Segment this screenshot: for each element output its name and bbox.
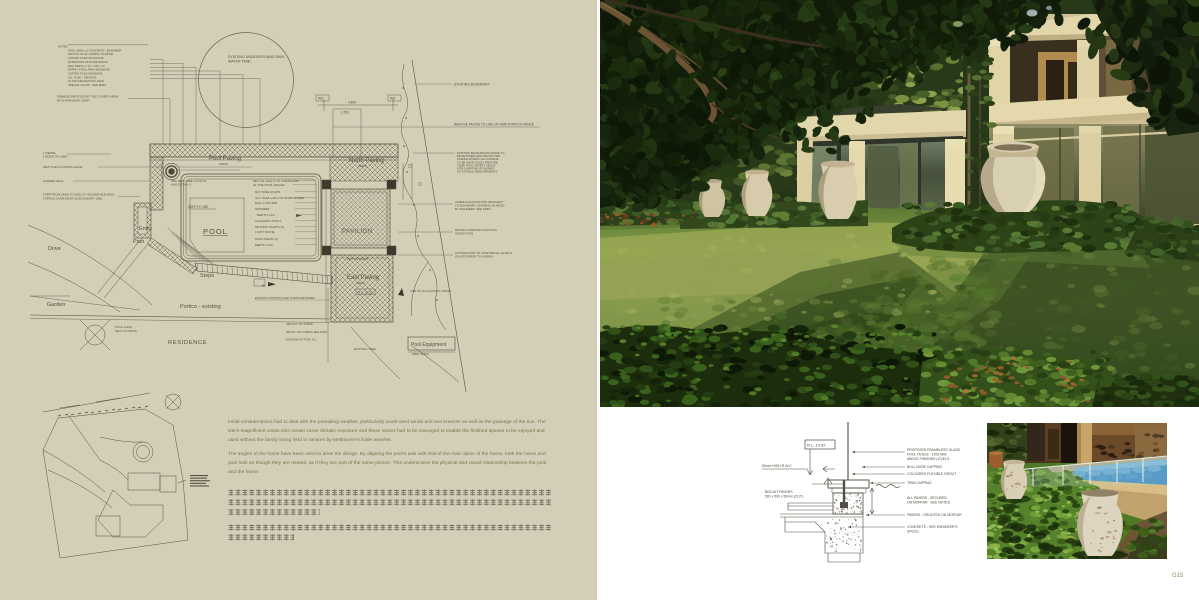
svg-text:(NEW): (NEW) (356, 281, 365, 285)
svg-text:EXISTING AT POR. R.L.: EXISTING AT POR. R.L. (286, 338, 318, 342)
svg-text:1 EDGE OF LAWN: 1 EDGE OF LAWN (43, 155, 67, 159)
svg-text:MAIN DRAIN (2): MAIN DRAIN (2) (255, 237, 278, 241)
svg-text:ON MORTAR - SEE NOTES.: ON MORTAR - SEE NOTES. (907, 500, 951, 504)
svg-text:ALL PAVERS - SECURED: ALL PAVERS - SECURED (907, 496, 947, 500)
svg-text:R.L. 14.52: R.L. 14.52 (358, 290, 373, 294)
svg-text:CONCRETE - SEE ENGINEER’S: CONCRETE - SEE ENGINEER’S (907, 525, 958, 529)
svg-text:SKIMMER: SKIMMER (255, 207, 270, 211)
svg-text:RESIDENCE: RESIDENCE (168, 340, 207, 346)
svg-text:POOL: POOL (203, 227, 228, 236)
svg-text:2.250: 2.250 (341, 111, 349, 115)
svg-text:RETURN INLETS (4): RETURN INLETS (4) (255, 225, 284, 229)
svg-text:B: B (262, 283, 265, 288)
svg-text:TRIM CAPPING: TRIM CAPPING (907, 481, 932, 485)
svg-text:TOPSOIL OVER EDGE AS BOUNDAR: TOPSOIL OVER EDGE AS BOUNDARY LINE (43, 196, 102, 200)
svg-text:ABOVE FINISHED LEVELS: ABOVE FINISHED LEVELS (907, 457, 950, 461)
svg-text:Steps: Steps (200, 273, 214, 279)
svg-text:PROPOSED FRAMELESS GLASS: PROPOSED FRAMELESS GLASS (907, 448, 961, 452)
svg-text:DETAIL OF COPING SEE DWG: DETAIL OF COPING SEE DWG (286, 330, 328, 334)
svg-text:SAFETY LINE: SAFETY LINE (188, 205, 208, 209)
svg-text:DEPTH 1.1m: DEPTH 1.1m (257, 213, 276, 217)
svg-text:CLEANING POINT: CLEANING POINT (255, 219, 281, 223)
svg-text:Drive: Drive (48, 246, 61, 252)
svg-text:REMOVE PALING TO LINE OF NEW: REMOVE PALING TO LINE OF NEW PORTICO FEN… (454, 123, 534, 127)
svg-text:AND DETAIL X: AND DETAIL X (171, 183, 191, 187)
svg-text:Pool Equipment: Pool Equipment (411, 342, 447, 348)
svg-text:EXISTING BOUNDARY: EXISTING BOUNDARY (454, 83, 491, 87)
svg-text:(SEE SPEC): (SEE SPEC) (412, 352, 429, 356)
svg-text:ALL TILES LAID ON MORTAR BED: ALL TILES LAID ON MORTAR BED (255, 196, 305, 200)
svg-text:(NEW): (NEW) (358, 164, 367, 168)
svg-text:SPECS.: SPECS. (907, 529, 919, 533)
svg-text:FALL 1:100 MIN: FALL 1:100 MIN (255, 201, 277, 205)
svg-text:TO COUNCIL REQUIREMENTS: TO COUNCIL REQUIREMENTS (457, 170, 498, 174)
svg-text:PAVERS - GROUTED ON MORTAR: PAVERS - GROUTED ON MORTAR (907, 513, 962, 517)
svg-text:VEGETATION: VEGETATION (455, 231, 473, 235)
svg-text:R.L. 14.52: R.L. 14.52 (807, 443, 826, 448)
svg-text:PAVILION: PAVILION (342, 229, 373, 235)
svg-text:500 x 500 x 50mm (CUT): 500 x 500 x 50mm (CUT) (765, 495, 803, 499)
svg-text:50mm HIGH R.W.C.: 50mm HIGH R.W.C. (762, 464, 793, 468)
svg-text:4.800: 4.800 (348, 101, 356, 105)
svg-text:SPECIAL GLASS - SEE SPEC: SPECIAL GLASS - SEE SPEC (68, 83, 106, 87)
svg-text:ON SITE PRIOR TO WORKS: ON SITE PRIOR TO WORKS (455, 254, 493, 258)
svg-text:Entry: Entry (139, 226, 152, 232)
svg-text:500: 500 (318, 97, 324, 101)
svg-text:EXISTING PORTICO AND STEPS: EXISTING PORTICO AND STEPS RETAINED (255, 296, 315, 300)
svg-text:BULL NOSE CAPPING: BULL NOSE CAPPING (907, 465, 942, 469)
svg-text:COLOURED FLEXIBLE GROUT: COLOURED FLEXIBLE GROUT (907, 472, 956, 476)
svg-text:SETOUT OF STEPS: SETOUT OF STEPS (286, 322, 313, 326)
svg-text:AT THE POOL EDGES: AT THE POOL EDGES (253, 183, 285, 187)
svg-text:GARDEN WALL: GARDEN WALL (43, 179, 64, 183)
svg-text:500: 500 (390, 97, 396, 101)
svg-text:EXISTING UNDERGROUND RAIN: EXISTING UNDERGROUND RAIN (228, 55, 285, 59)
svg-text:WATER TANK: WATER TANK (228, 60, 251, 64)
svg-text:LIGHT NICHE: LIGHT NICHE (255, 230, 275, 234)
svg-text:(NEW): (NEW) (219, 162, 228, 166)
svg-text:Garden: Garden (47, 302, 65, 308)
svg-text:FALL TO DRAIN: FALL TO DRAIN (347, 257, 368, 261)
svg-text:BISCUIT PAVERS: BISCUIT PAVERS (765, 490, 793, 494)
svg-text:Portico - existing: Portico - existing (180, 304, 221, 310)
svg-text:POOL FENCE - 1200 MIN: POOL FENCE - 1200 MIN (907, 452, 947, 456)
svg-text:BY ENGINEER. SEE SPEC.: BY ENGINEER. SEE SPEC. (455, 207, 492, 211)
svg-text:NEW TILES & COPING EDGE: NEW TILES & COPING EDGE (43, 165, 83, 169)
svg-text:EXISTING TREE: EXISTING TREE (354, 347, 376, 351)
svg-text:DEPTH 1.9m: DEPTH 1.9m (255, 243, 274, 247)
svg-text:LINE OF GLASS POOL FENCE: LINE OF GLASS POOL FENCE (410, 289, 451, 293)
svg-text:NO EXPANSION JOINT: NO EXPANSION JOINT (57, 98, 90, 102)
svg-text:NO HOSE DOWN: NO HOSE DOWN (255, 190, 280, 194)
svg-text:SELF CLOSING: SELF CLOSING (115, 329, 138, 333)
